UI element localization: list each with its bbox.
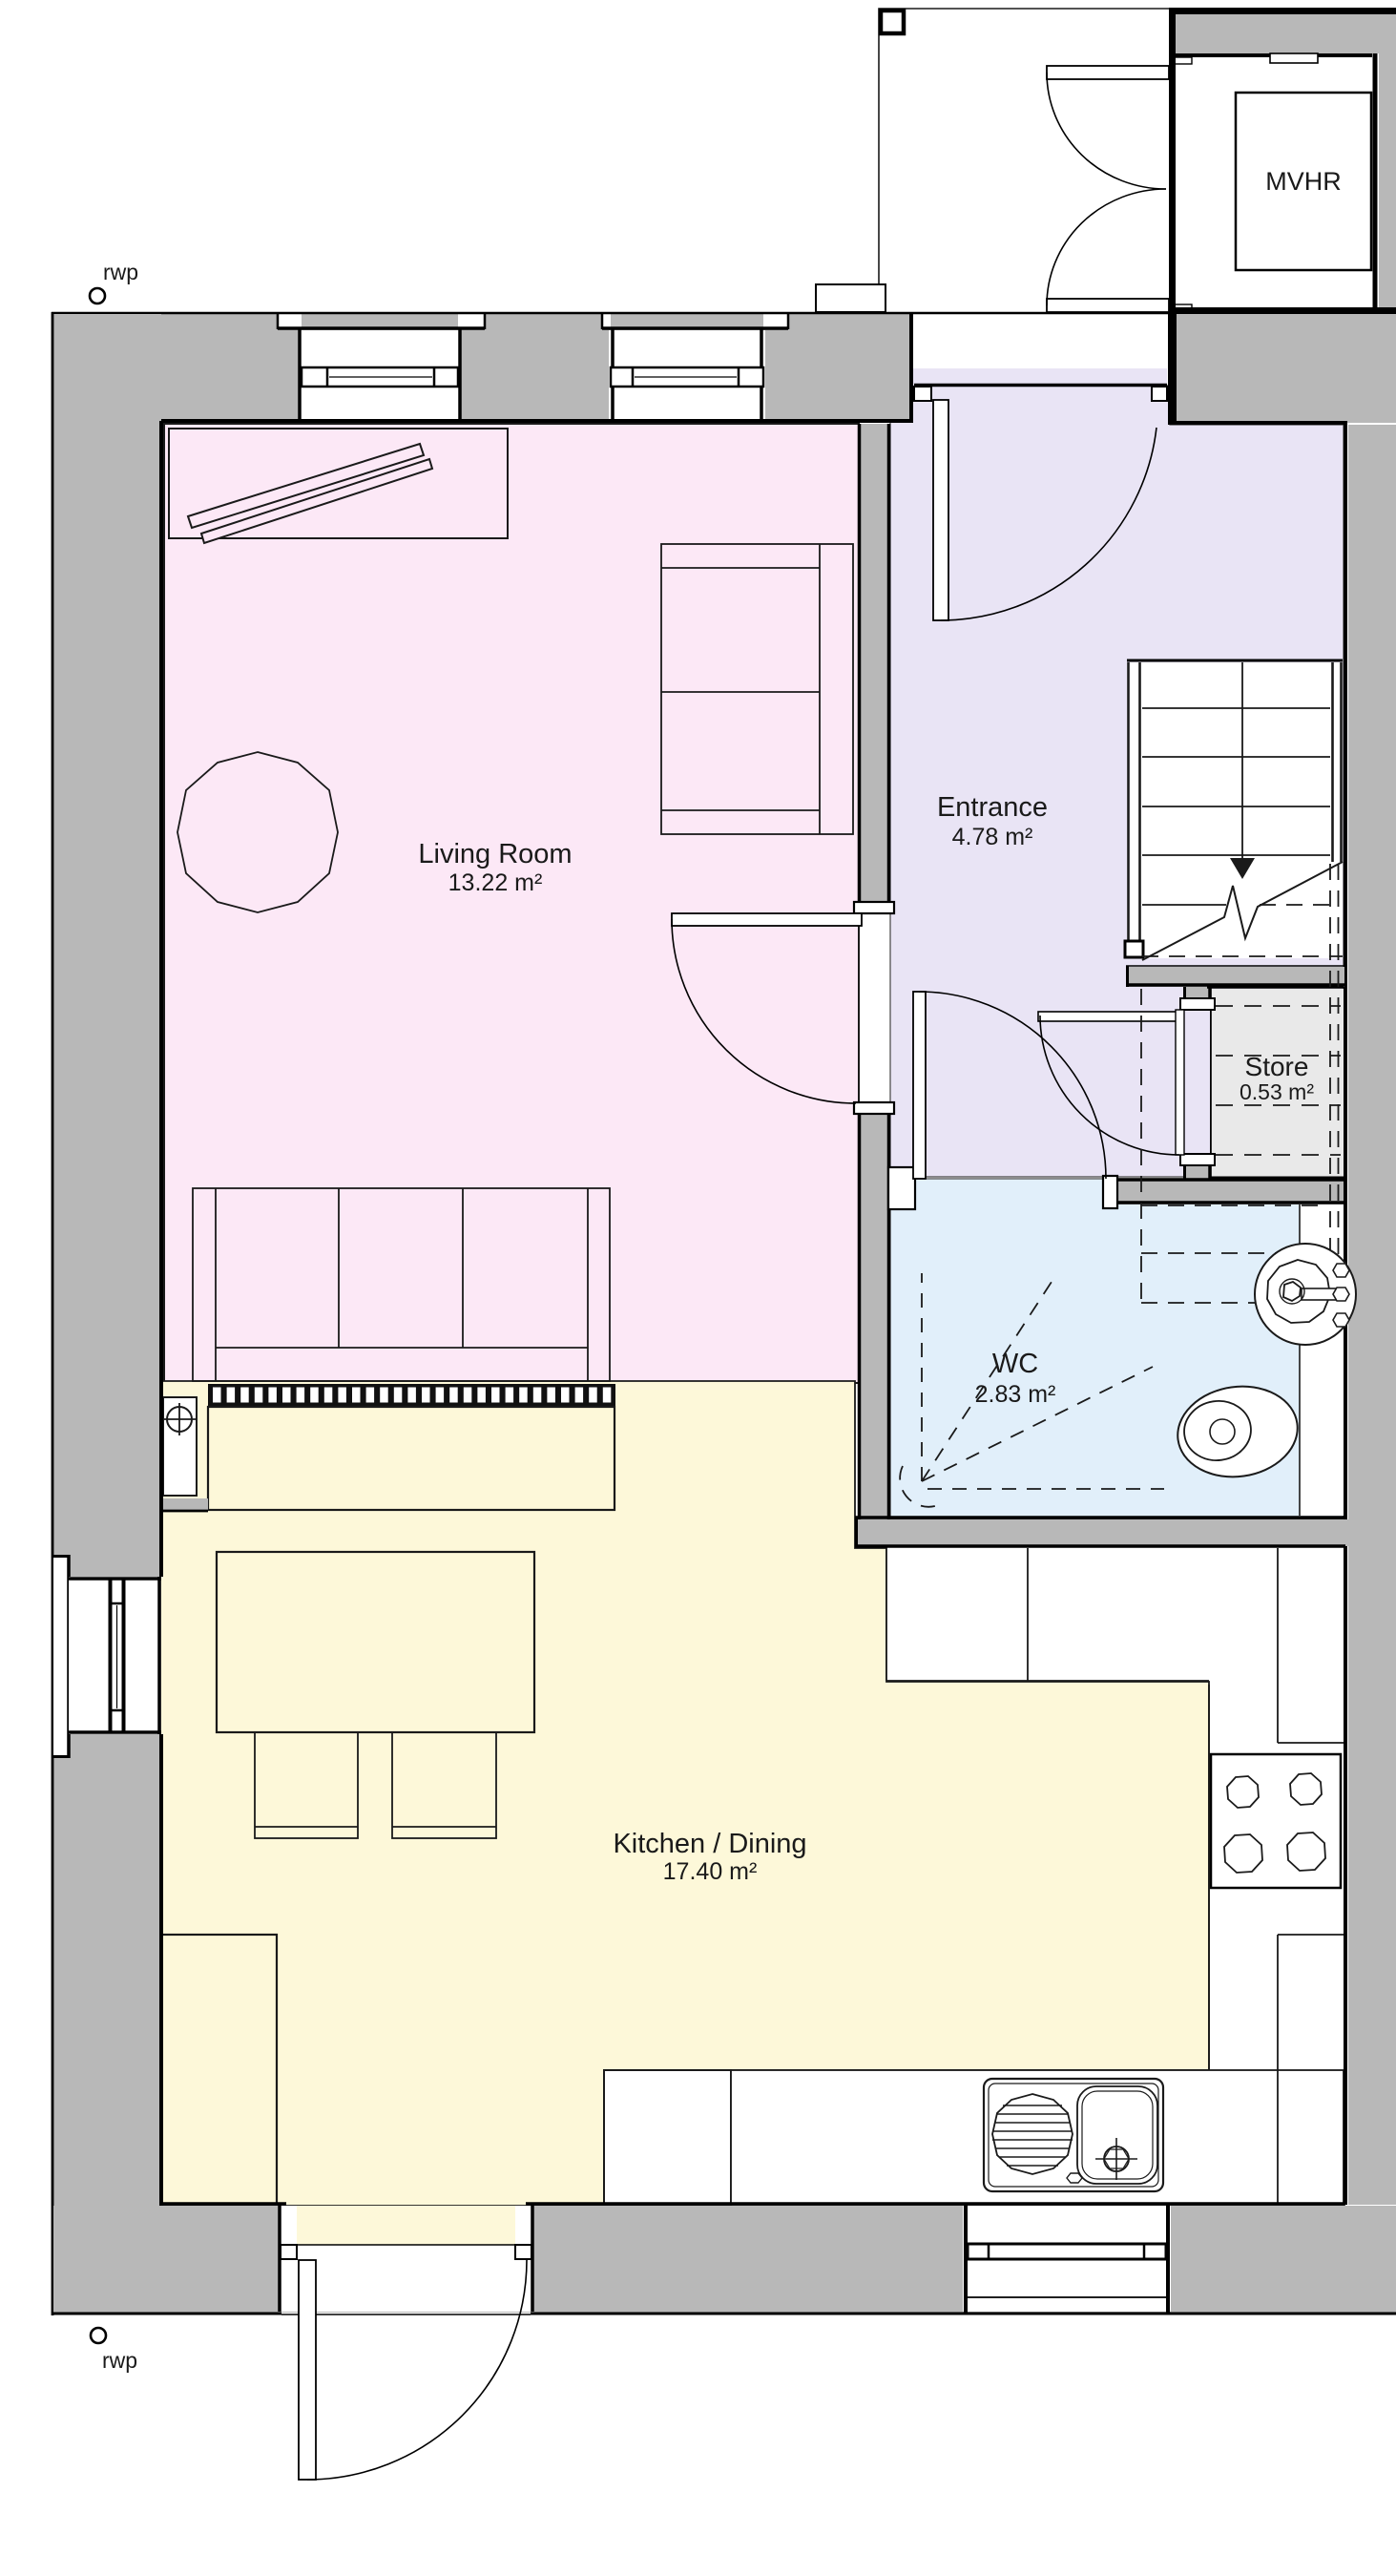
svg-text:rwp: rwp — [103, 260, 138, 284]
svg-text:17.40 m²: 17.40 m² — [663, 1858, 758, 1885]
svg-text:Living Room: Living Room — [418, 839, 572, 869]
svg-text:0.53 m²: 0.53 m² — [1240, 1079, 1314, 1104]
svg-text:Store: Store — [1245, 1052, 1309, 1081]
svg-text:MVHR: MVHR — [1265, 167, 1342, 196]
svg-text:WC: WC — [992, 1349, 1038, 1379]
svg-text:Entrance: Entrance — [937, 792, 1048, 823]
svg-text:2.83 m²: 2.83 m² — [975, 1381, 1056, 1408]
svg-text:Kitchen / Dining: Kitchen / Dining — [613, 1829, 806, 1859]
svg-text:rwp: rwp — [102, 2348, 137, 2373]
svg-text:4.78 m²: 4.78 m² — [952, 824, 1033, 850]
svg-text:13.22 m²: 13.22 m² — [448, 869, 543, 896]
